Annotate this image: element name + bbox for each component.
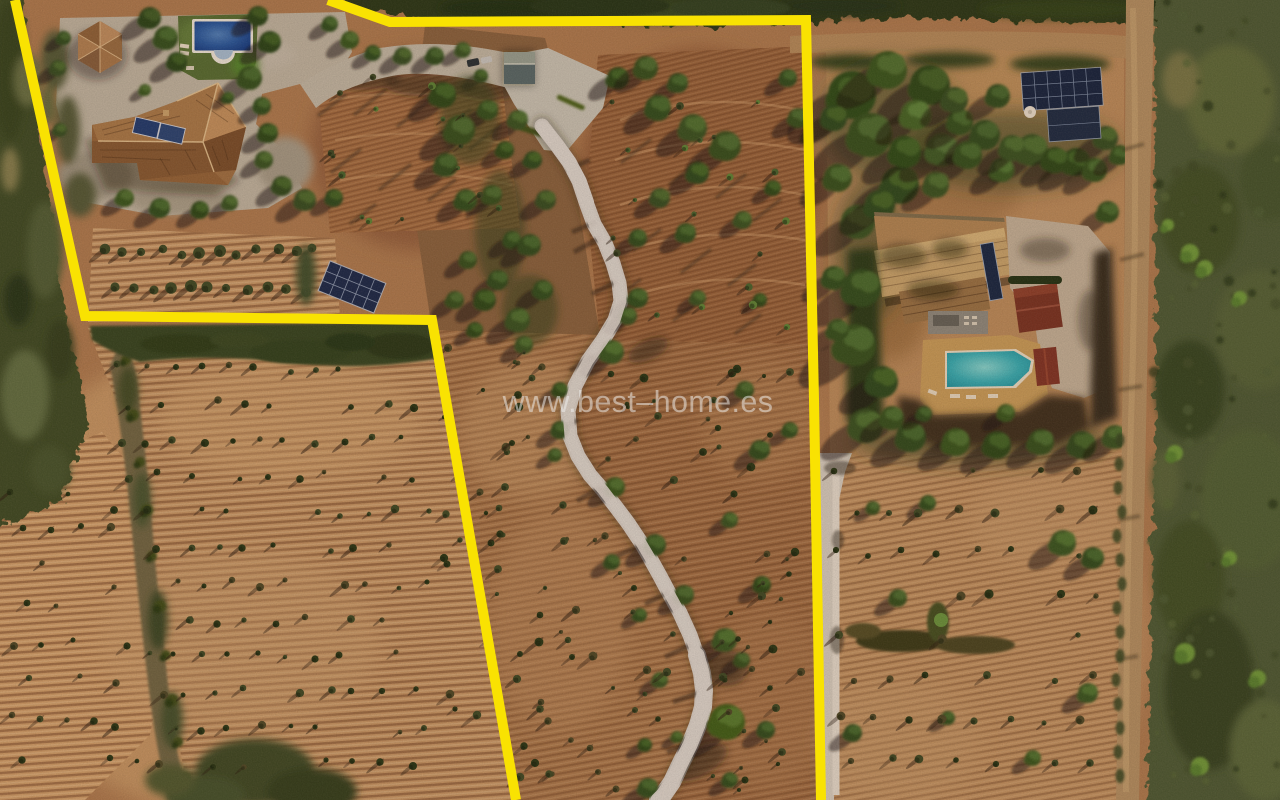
svg-text:www.best–home.es: www.best–home.es	[502, 385, 774, 419]
